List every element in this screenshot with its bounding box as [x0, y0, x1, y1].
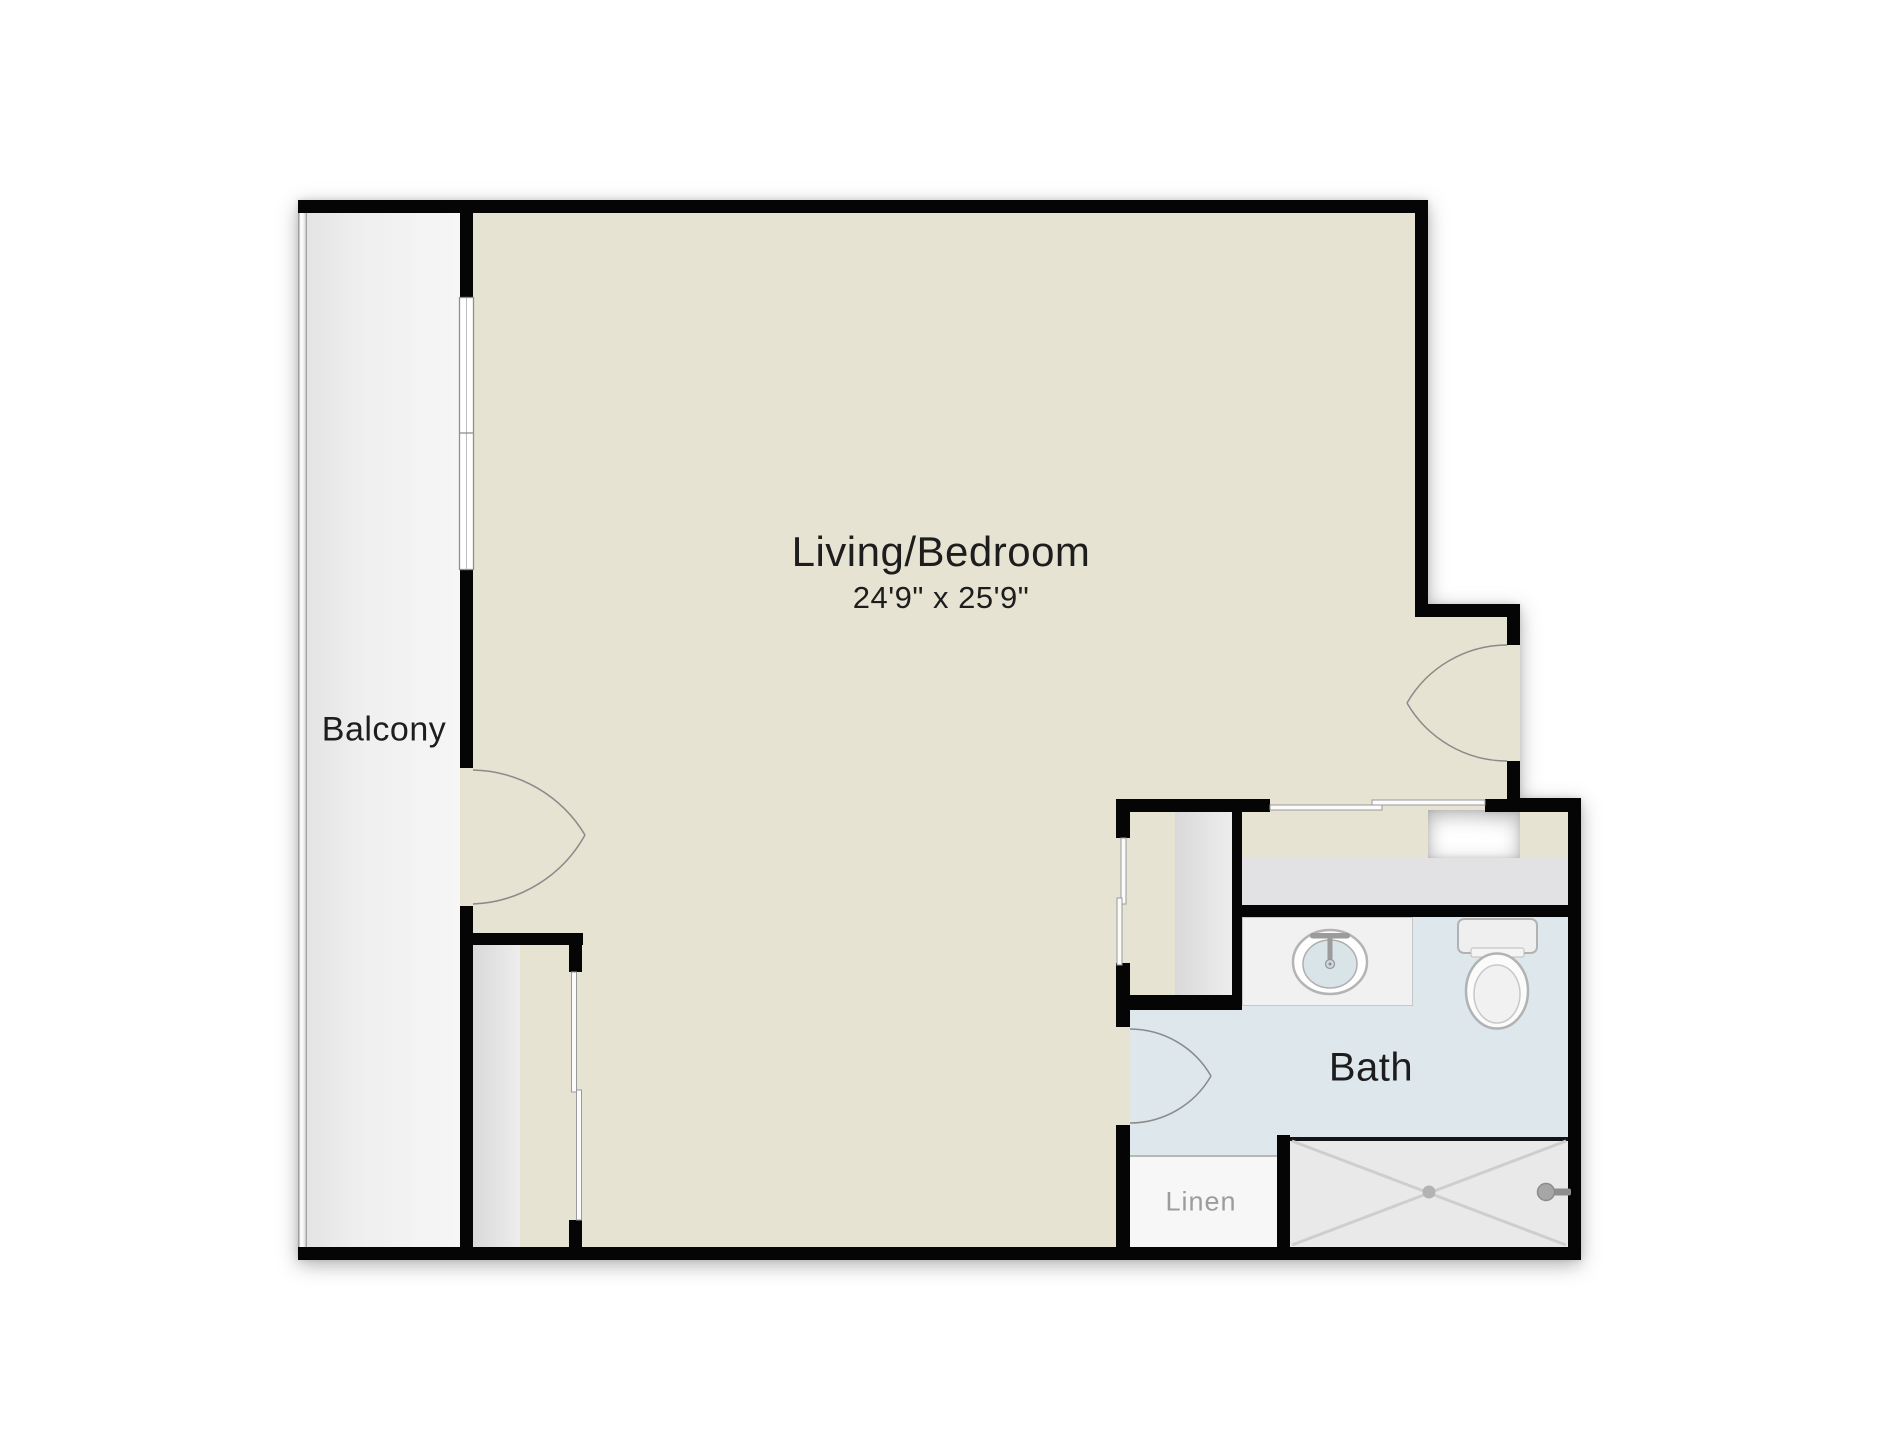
entry-closet-door-panel: [1372, 800, 1485, 805]
room-dimensions-living-bedroom: 24'9" x 25'9": [853, 580, 1030, 616]
left-closet-door-panel: [577, 1090, 582, 1220]
left-closet-door-panel: [572, 972, 577, 1092]
room-label-linen: Linen: [1165, 1187, 1236, 1218]
shower-head-icon: [1538, 1184, 1555, 1201]
hall-closet-door-panel: [1117, 898, 1122, 965]
plan-lineart: [0, 0, 1904, 1444]
toilet-icon: [1458, 919, 1537, 1029]
shower-icon: [1292, 1141, 1571, 1245]
balcony-door-arc: [473, 770, 585, 904]
floor-plan-page: Living/Bedroom 24'9" x 25'9" Balcony Bat…: [0, 0, 1904, 1444]
window: [460, 298, 474, 570]
bath-door-arc: [1130, 1029, 1211, 1123]
room-label-living-bedroom: Living/Bedroom: [792, 528, 1091, 576]
room-label-balcony: Balcony: [322, 711, 446, 750]
shower-drain-icon: [1423, 1186, 1436, 1199]
hall-closet-door-panel: [1121, 838, 1126, 904]
entry-closet-door-panel: [1270, 805, 1382, 810]
floor-plan: Living/Bedroom 24'9" x 25'9" Balcony Bat…: [0, 0, 1904, 1444]
entry-door-arc: [1407, 645, 1507, 761]
room-label-bath: Bath: [1329, 1046, 1413, 1091]
sink-icon: [1293, 930, 1367, 994]
